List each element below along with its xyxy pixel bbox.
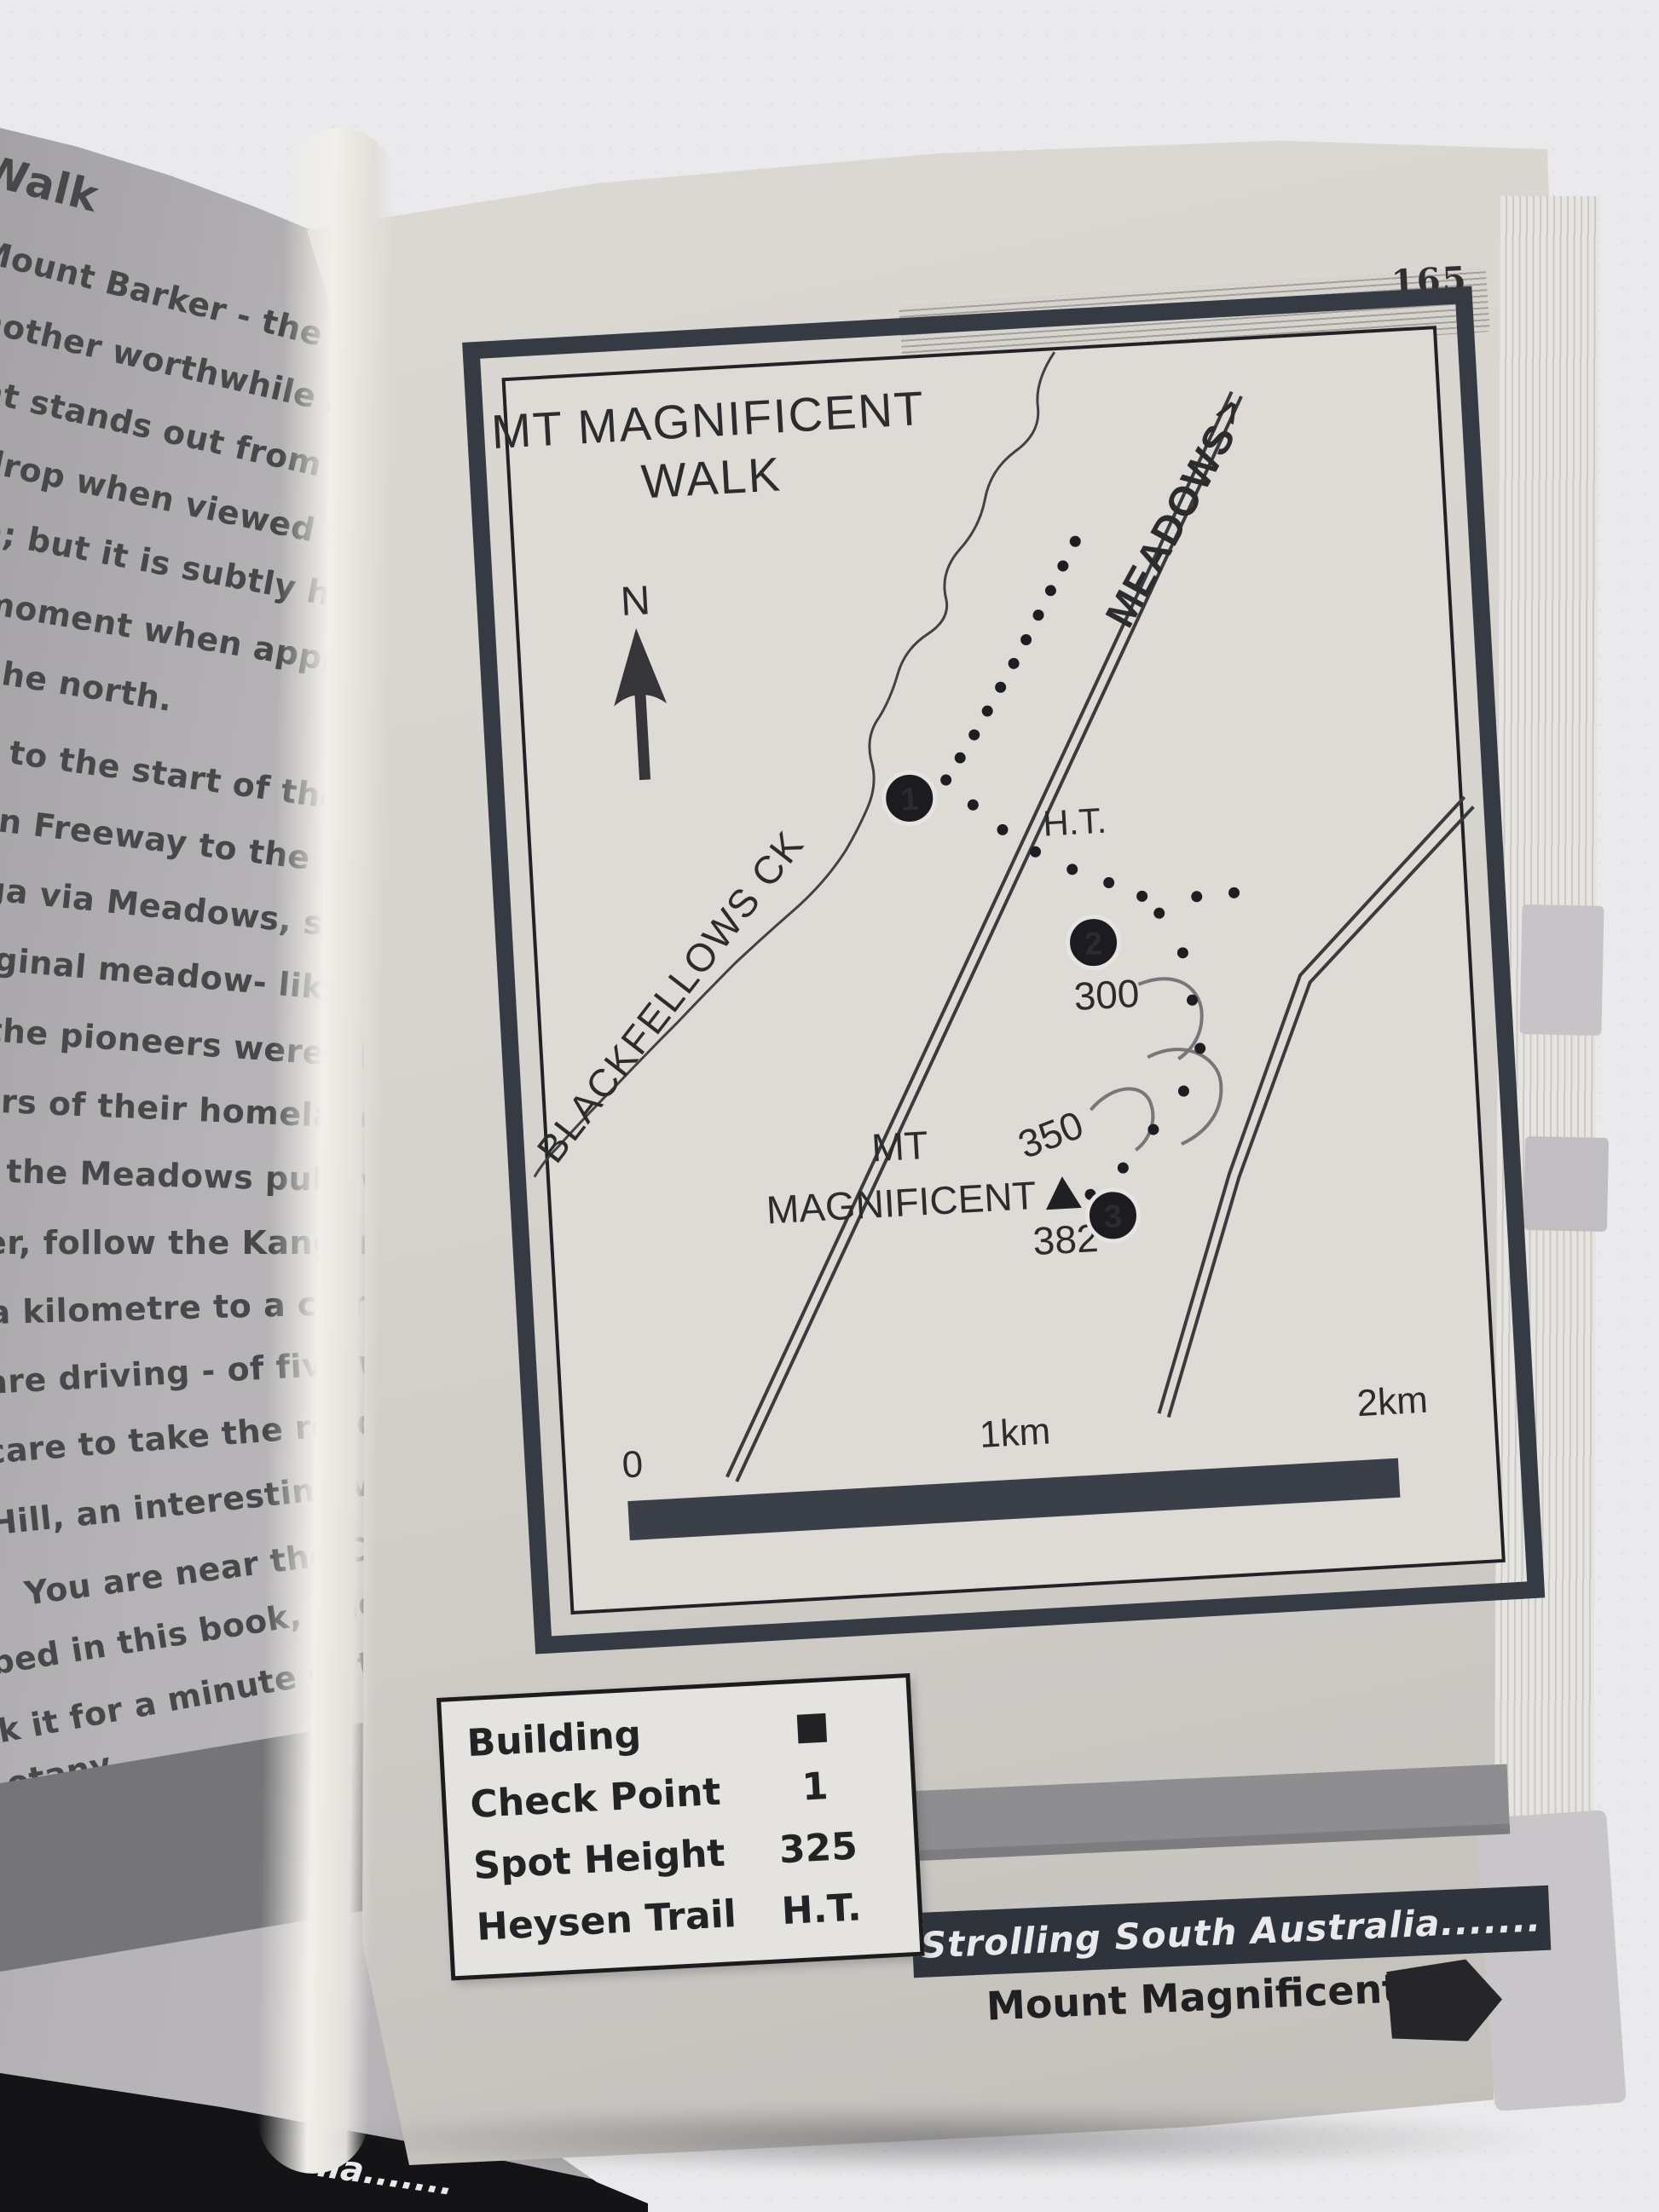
checkpoint-1: 1 bbox=[882, 771, 936, 825]
scale-label-2km: 2km bbox=[1356, 1379, 1429, 1425]
heysen-trail-label: H.T. bbox=[1042, 800, 1107, 844]
spot-height-300: 300 bbox=[1072, 971, 1141, 1019]
scale-label-1km: 1km bbox=[979, 1410, 1052, 1456]
legend-label: Heysen Trail bbox=[476, 1891, 750, 1949]
scale-label-0: 0 bbox=[621, 1443, 644, 1486]
checkpoint-3: 3 bbox=[1086, 1188, 1140, 1242]
legend-value: 1 bbox=[742, 1761, 888, 1812]
checkpoint-3-number: 3 bbox=[1103, 1198, 1123, 1235]
map-title-line2: WALK bbox=[639, 447, 783, 508]
left-page-text-line: rs of their homeland. bbox=[0, 1083, 396, 1137]
checkpoint-2-number: 2 bbox=[1084, 926, 1103, 962]
left-page-text-line: he north. bbox=[0, 655, 176, 719]
checkpoint-2: 2 bbox=[1066, 915, 1120, 969]
legend-label: Check Point bbox=[469, 1769, 743, 1827]
summit-label-line1: MT bbox=[870, 1123, 929, 1170]
north-label: N bbox=[620, 578, 652, 625]
legend-label: Spot Height bbox=[472, 1830, 747, 1888]
legend-label: Building bbox=[465, 1707, 740, 1765]
legend-value: 325 bbox=[745, 1822, 892, 1874]
map-legend: Building■Check Point1Spot Height325Heyse… bbox=[436, 1673, 925, 1981]
left-page-heading: Walk bbox=[0, 145, 103, 222]
walk-map: MT MAGNIFICENT WALK N BLACKFELLOWS CK ME… bbox=[460, 285, 1546, 1656]
checkpoint-1-number: 1 bbox=[899, 782, 919, 818]
legend-building-square-icon: ■ bbox=[738, 1700, 885, 1751]
legend-value: H.T. bbox=[748, 1884, 894, 1935]
